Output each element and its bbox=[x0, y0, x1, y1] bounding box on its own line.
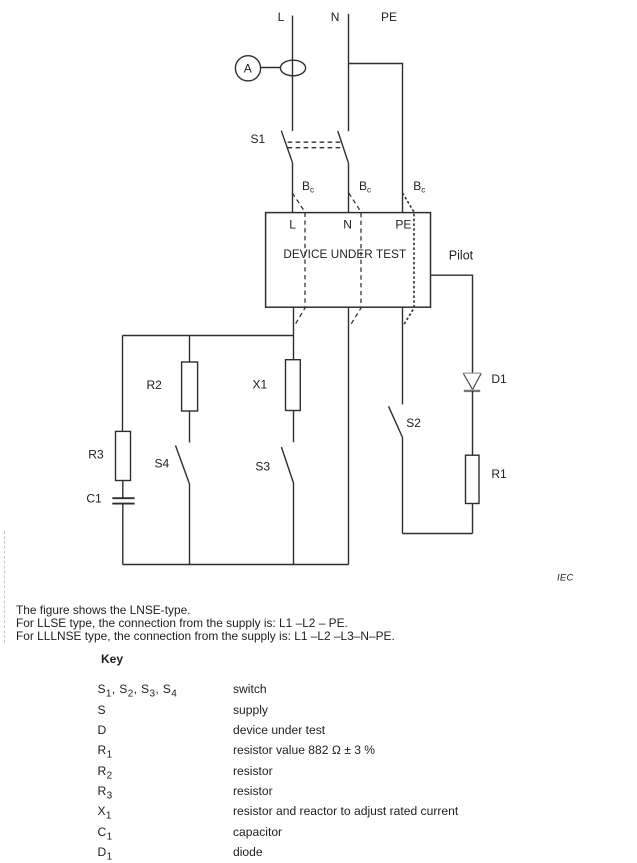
svg-text:S2: S2 bbox=[406, 416, 421, 430]
svg-text:R1: R1 bbox=[491, 467, 507, 481]
svg-text:PE: PE bbox=[381, 10, 397, 24]
svg-text:L: L bbox=[278, 10, 285, 24]
svg-text:R2: R2 bbox=[147, 378, 163, 392]
svg-text:X1: X1 bbox=[253, 378, 268, 392]
svg-text:Bc: Bc bbox=[413, 179, 425, 195]
svg-text:N: N bbox=[331, 10, 340, 24]
svg-text:IEC: IEC bbox=[557, 572, 574, 583]
svg-text:L: L bbox=[289, 218, 296, 232]
svg-text:N: N bbox=[343, 218, 352, 232]
svg-text:Bc: Bc bbox=[302, 179, 314, 195]
svg-text:R3: R3 bbox=[88, 448, 104, 462]
svg-text:PE: PE bbox=[395, 218, 411, 232]
svg-text:Pilot: Pilot bbox=[449, 249, 474, 263]
svg-text:D1: D1 bbox=[491, 372, 507, 386]
svg-text:DEVICE UNDER TEST: DEVICE UNDER TEST bbox=[283, 248, 406, 261]
svg-text:S4: S4 bbox=[155, 457, 170, 471]
svg-text:A: A bbox=[244, 62, 252, 76]
svg-text:S1: S1 bbox=[251, 132, 266, 146]
svg-text:Bc: Bc bbox=[359, 179, 371, 195]
svg-text:S3: S3 bbox=[255, 460, 270, 474]
svg-text:C1: C1 bbox=[86, 492, 102, 506]
